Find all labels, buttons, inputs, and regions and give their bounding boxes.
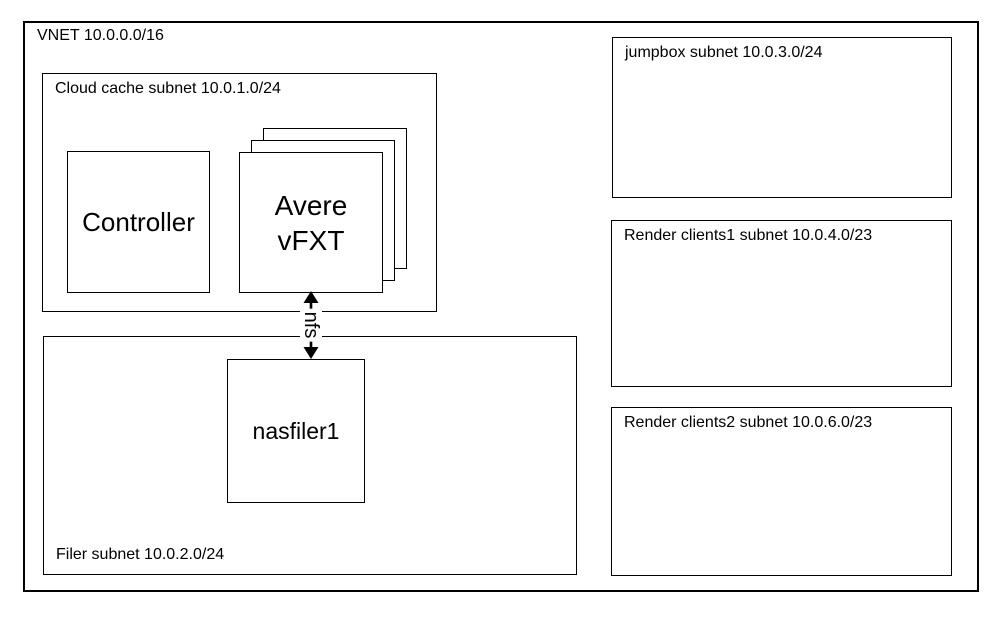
nfs-link-label: nfs	[300, 309, 322, 342]
jumpbox-subnet-label: jumpbox subnet 10.0.3.0/24	[625, 44, 822, 62]
render-clients1-subnet-label: Render clients1 subnet 10.0.4.0/23	[624, 227, 872, 245]
render-clients2-subnet-label: Render clients2 subnet 10.0.6.0/23	[624, 414, 872, 432]
diagram-canvas: VNET 10.0.0.0/16 Cloud cache subnet 10.0…	[0, 0, 999, 618]
render-clients1-subnet-box: Render clients1 subnet 10.0.4.0/23	[611, 220, 952, 387]
nasfiler1-label: nasfiler1	[228, 360, 364, 502]
avere-vfxt-node: Avere vFXT	[239, 152, 383, 293]
nasfiler1-node: nasfiler1	[227, 359, 365, 503]
jumpbox-subnet-box: jumpbox subnet 10.0.3.0/24	[612, 37, 952, 198]
avere-vfxt-label: Avere vFXT	[240, 153, 382, 292]
vnet-label: VNET 10.0.0.0/16	[37, 27, 164, 45]
render-clients2-subnet-box: Render clients2 subnet 10.0.6.0/23	[611, 407, 952, 576]
avere-vfxt-label-line2: vFXT	[278, 223, 345, 258]
avere-vfxt-label-line1: Avere	[275, 188, 348, 223]
filer-subnet-label: Filer subnet 10.0.2.0/24	[56, 546, 224, 564]
controller-node: Controller	[67, 151, 210, 293]
controller-label: Controller	[68, 152, 209, 292]
cloud-cache-subnet-label: Cloud cache subnet 10.0.1.0/24	[55, 80, 281, 98]
